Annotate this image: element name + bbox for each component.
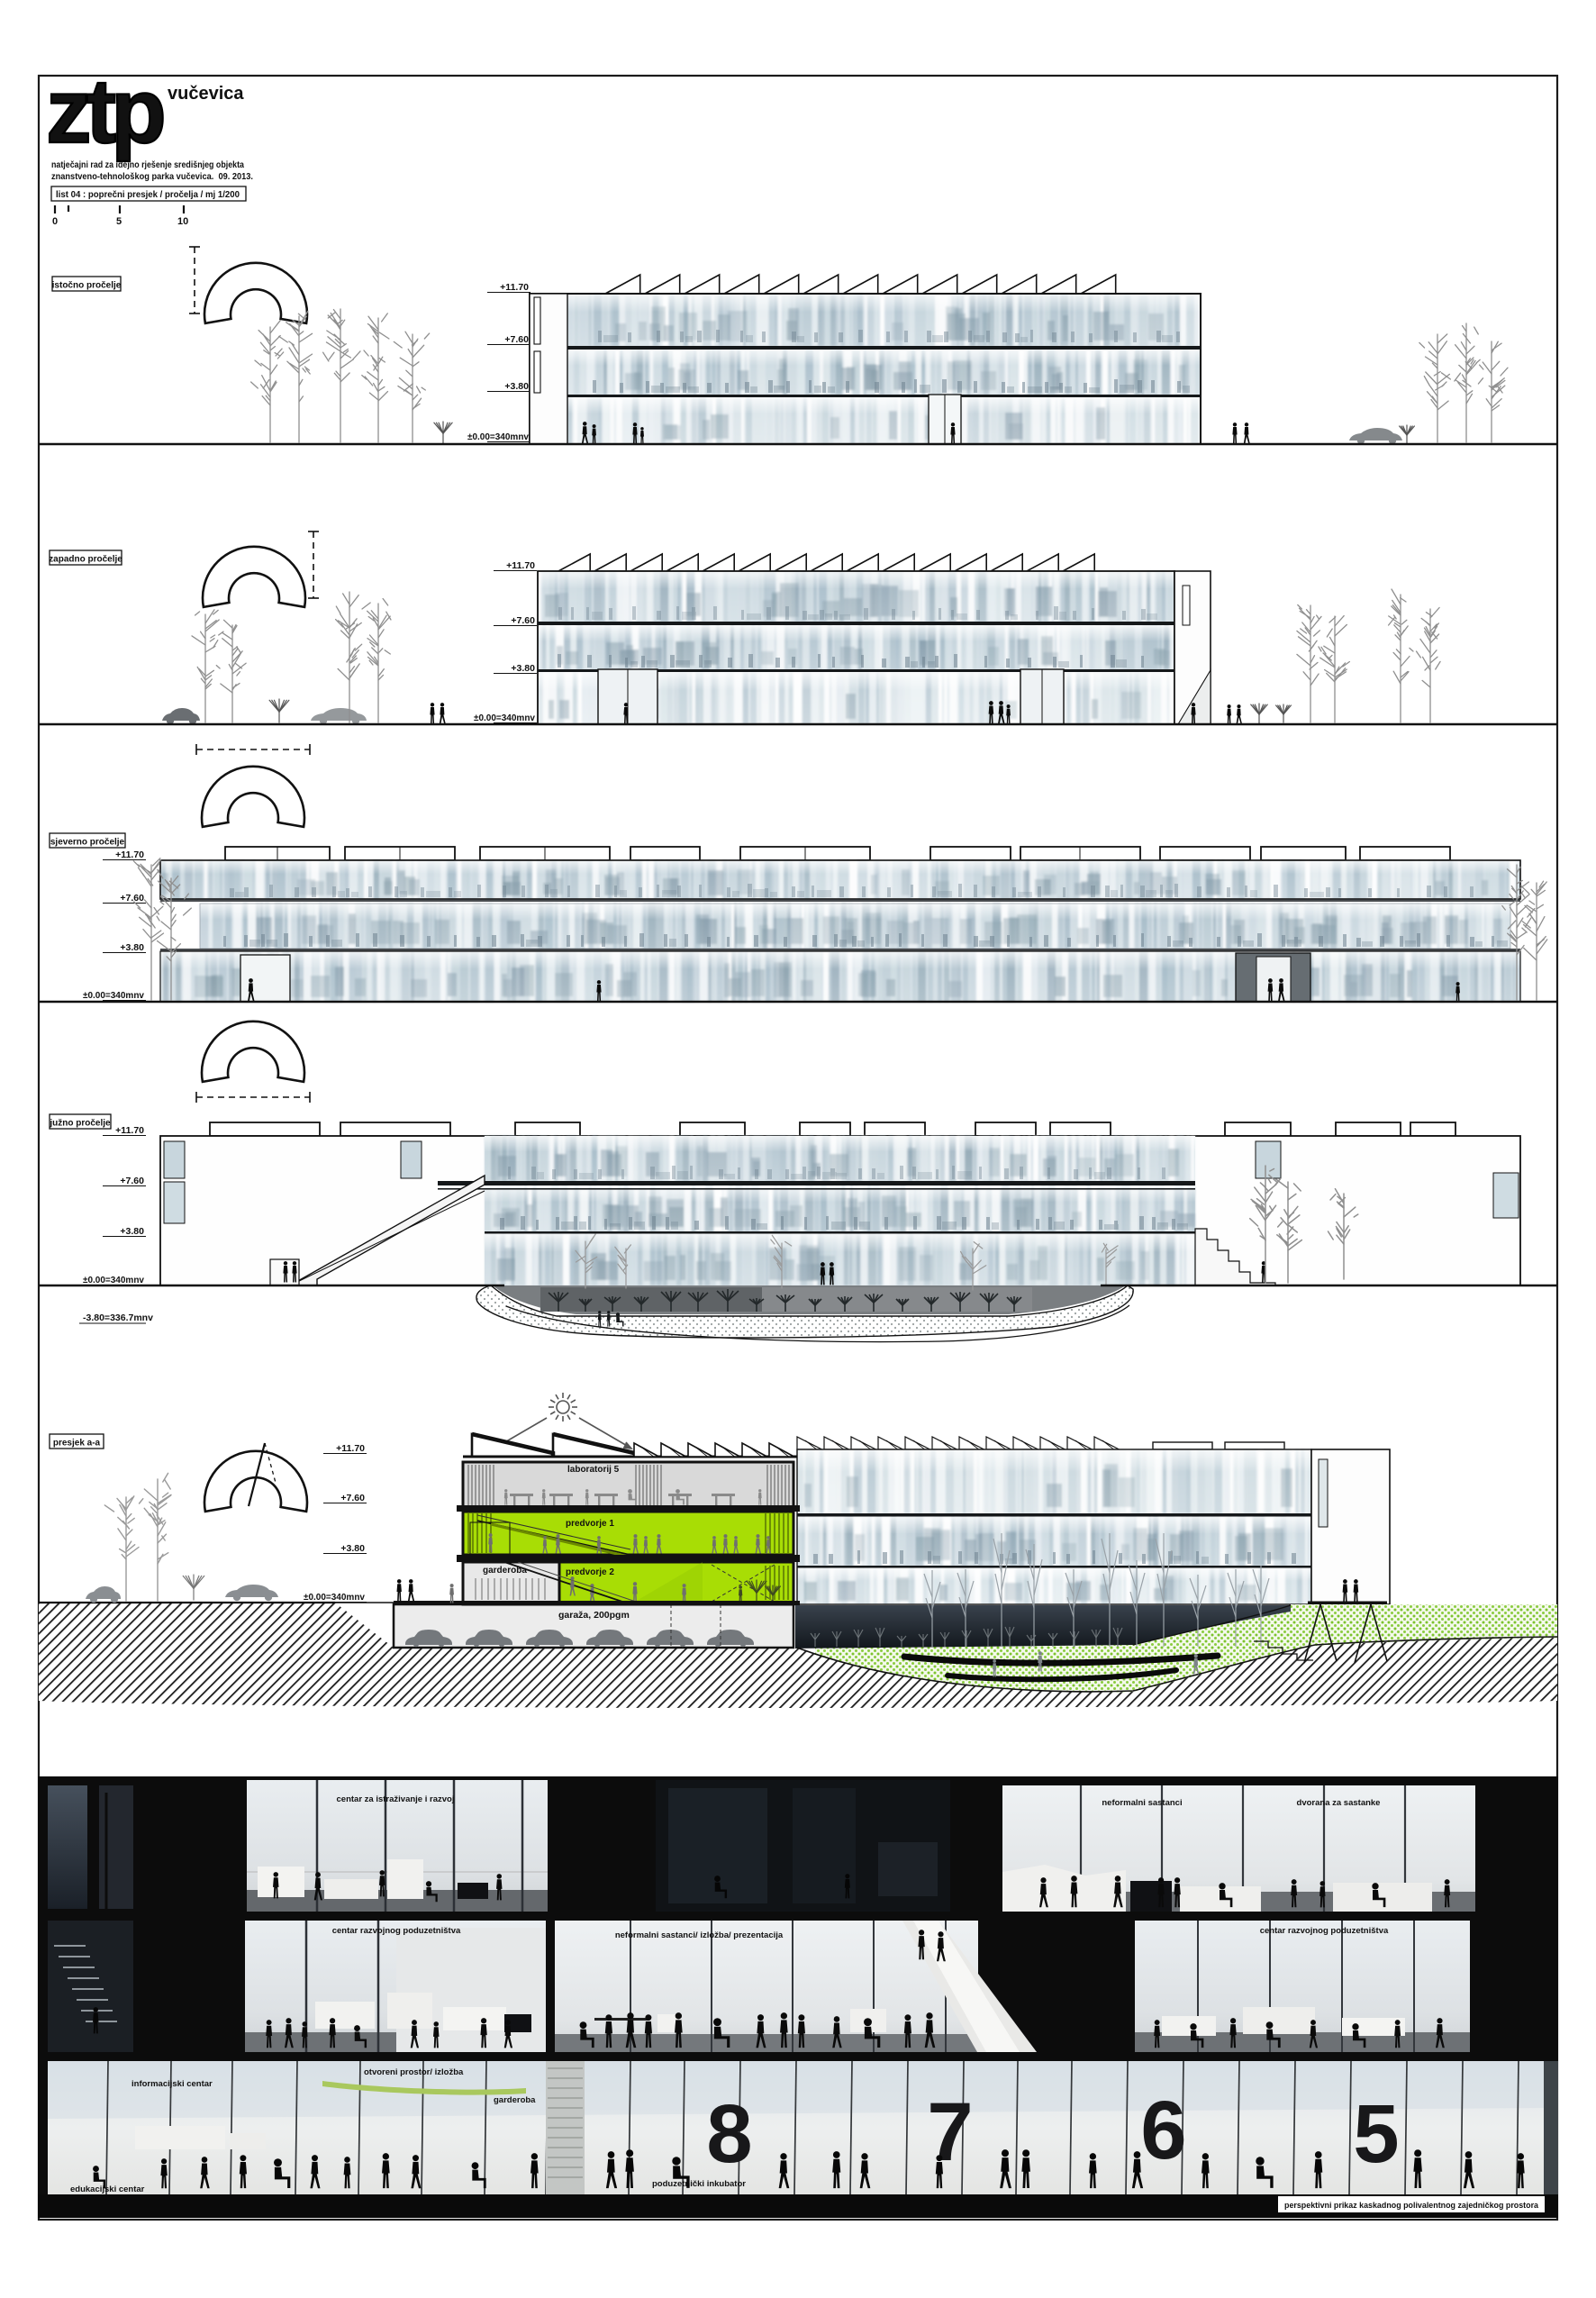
svg-text:±0.00=340mnv: ±0.00=340mnv	[83, 1276, 144, 1285]
svg-text:±0.00=340mnv: ±0.00=340mnv	[467, 432, 529, 442]
svg-text:+3.80: +3.80	[504, 381, 529, 392]
svg-text:natječajni rad za idejno rješe: natječajni rad za idejno rješenje središ…	[51, 160, 244, 170]
svg-text:10: 10	[177, 216, 188, 227]
svg-text:poduzetnički inkubator: poduzetnički inkubator	[652, 2179, 746, 2189]
svg-text:istočno pročelje: istočno pročelje	[52, 281, 122, 291]
svg-text:7: 7	[927, 2086, 973, 2178]
svg-text:predvorje 1: predvorje 1	[566, 1519, 614, 1529]
svg-text:vučevica: vučevica	[168, 84, 244, 104]
svg-text:5: 5	[116, 216, 122, 227]
svg-text:0: 0	[52, 216, 58, 227]
svg-text:informacijski centar: informacijski centar	[131, 2079, 213, 2089]
svg-text:sjeverno pročelje: sjeverno pročelje	[50, 838, 125, 848]
svg-text:+3.80: +3.80	[120, 1226, 144, 1237]
svg-text:-3.80=336.7mnv: -3.80=336.7mnv	[83, 1312, 153, 1323]
svg-text:+3.80: +3.80	[340, 1543, 365, 1554]
svg-text:otvoreni prostor/ izložba: otvoreni prostor/ izložba	[364, 2067, 464, 2077]
svg-text:garaža, 200pgm: garaža, 200pgm	[558, 1610, 630, 1621]
svg-text:centar razvojnog poduzetništva: centar razvojnog poduzetništva	[1260, 1926, 1389, 1936]
svg-text:+11.70: +11.70	[336, 1443, 365, 1454]
svg-text:perspektivni prikaz kaskadnog: perspektivni prikaz kaskadnog polivalent…	[1284, 2201, 1539, 2211]
svg-text:±0.00=340mnv: ±0.00=340mnv	[83, 991, 144, 1001]
svg-text:garderoba: garderoba	[494, 2095, 536, 2105]
svg-text:zapadno pročelje: zapadno pročelje	[49, 555, 122, 565]
svg-text:centar razvojnog poduzetništva: centar razvojnog poduzetništva	[332, 1926, 461, 1936]
svg-text:6: 6	[1140, 2085, 1186, 2176]
svg-text:±0.00=340mnv: ±0.00=340mnv	[304, 1593, 365, 1603]
svg-text:presjek a-a: presjek a-a	[53, 1439, 101, 1449]
svg-text:ztp: ztp	[46, 61, 163, 162]
svg-text:+11.70: +11.70	[500, 282, 529, 293]
svg-text:laboratorij 5: laboratorij 5	[567, 1465, 620, 1475]
svg-text:edukacijski centar: edukacijski centar	[70, 2184, 145, 2194]
svg-text:južno pročelje: južno pročelje	[49, 1119, 111, 1129]
svg-text:+7.60: +7.60	[504, 334, 529, 345]
svg-text:dvorana za sastanke: dvorana za sastanke	[1297, 1798, 1381, 1808]
svg-text:predvorje 2: predvorje 2	[566, 1567, 614, 1577]
svg-text:+11.70: +11.70	[506, 560, 535, 571]
svg-text:list 04 : poprečni presjek / p: list 04 : poprečni presjek / pročelja / …	[56, 190, 240, 200]
svg-text:neformalni sastanci/ izložba/: neformalni sastanci/ izložba/ prezentaci…	[615, 1930, 784, 1940]
svg-text:+7.60: +7.60	[120, 893, 144, 904]
svg-text:5: 5	[1353, 2088, 1399, 2180]
svg-text:±0.00=340mnv: ±0.00=340mnv	[474, 713, 535, 723]
svg-text:+7.60: +7.60	[120, 1176, 144, 1186]
svg-text:8: 8	[706, 2088, 752, 2180]
svg-text:+11.70: +11.70	[115, 849, 144, 860]
svg-text:neformalni sastanci: neformalni sastanci	[1102, 1798, 1182, 1808]
svg-text:+7.60: +7.60	[511, 615, 535, 626]
svg-text:centar za istraživanje i razvo: centar za istraživanje i razvoj	[337, 1794, 455, 1804]
svg-text:+7.60: +7.60	[340, 1493, 365, 1503]
svg-text:znanstveno-tehnološkog parka v: znanstveno-tehnološkog parka vučevica. 0…	[51, 172, 253, 182]
svg-text:+11.70: +11.70	[115, 1125, 144, 1136]
svg-text:+3.80: +3.80	[511, 663, 535, 674]
svg-text:+3.80: +3.80	[120, 942, 144, 953]
